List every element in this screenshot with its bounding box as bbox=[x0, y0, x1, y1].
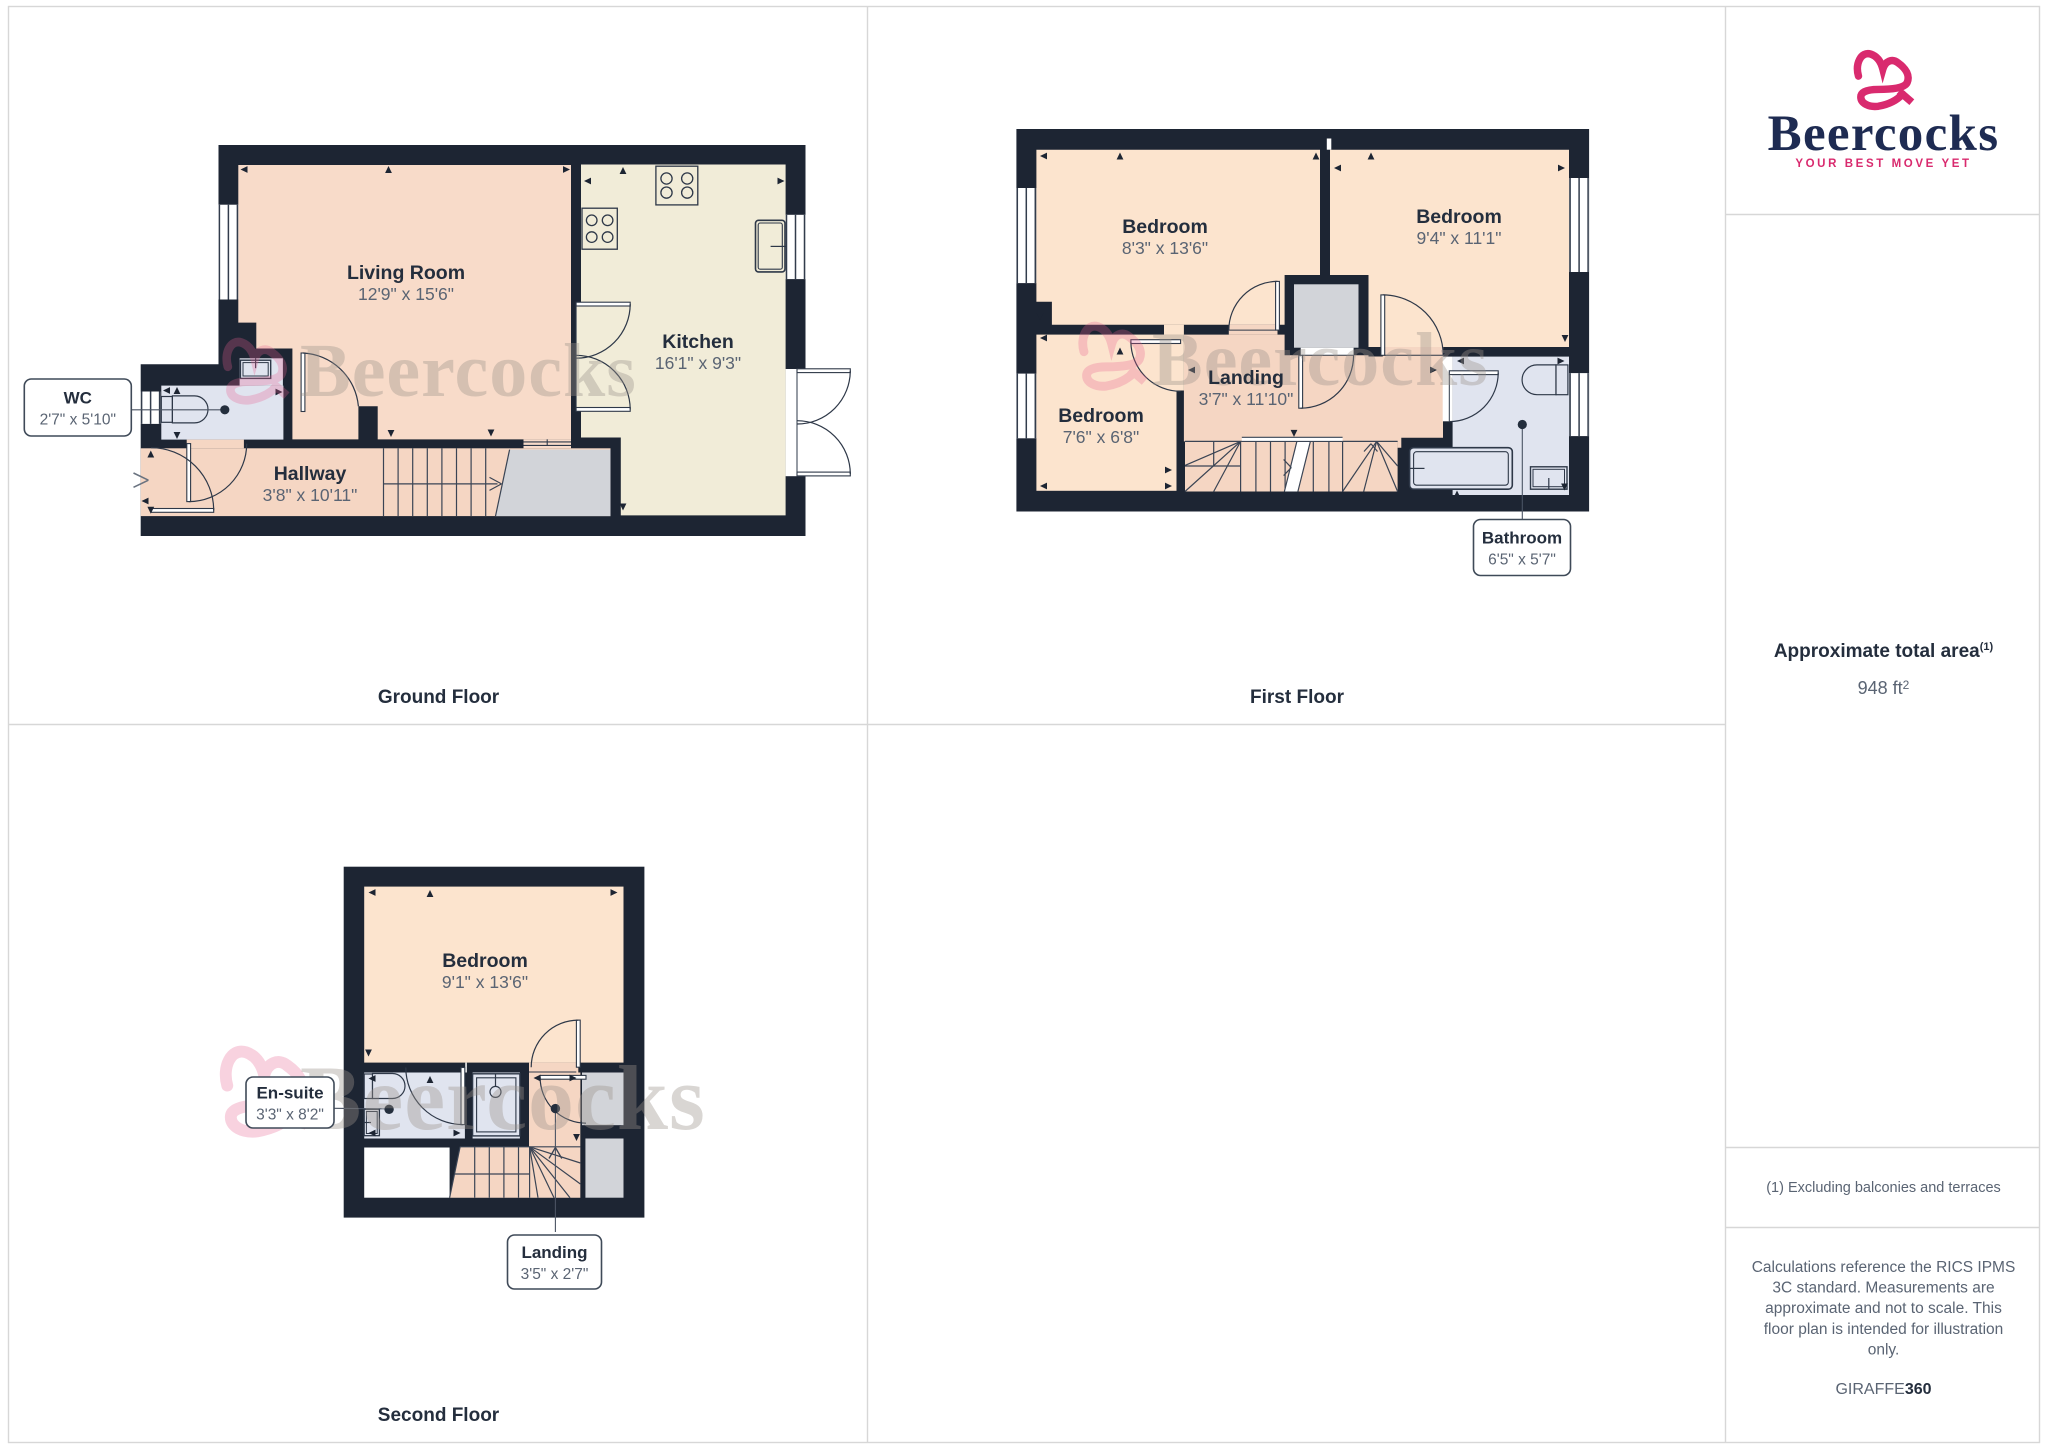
svg-text:Bedroom: Bedroom bbox=[1058, 405, 1144, 427]
svg-text:3'7" x 11'10": 3'7" x 11'10" bbox=[1199, 389, 1294, 409]
svg-text:12'9" x 15'6": 12'9" x 15'6" bbox=[358, 284, 454, 304]
svg-text:3'5" x 2'7": 3'5" x 2'7" bbox=[521, 1266, 589, 1283]
svg-text:Second Floor: Second Floor bbox=[378, 1405, 500, 1426]
svg-text:(1) Excluding balconies and te: (1) Excluding balconies and terraces bbox=[1766, 1180, 2001, 1196]
svg-text:6'5" x 5'7": 6'5" x 5'7" bbox=[1488, 552, 1556, 569]
svg-text:Approximate total area(1): Approximate total area(1) bbox=[1774, 641, 1994, 662]
svg-text:Bedroom: Bedroom bbox=[442, 950, 528, 972]
svg-text:Beercocks: Beercocks bbox=[300, 329, 637, 413]
svg-text:En-suite: En-suite bbox=[256, 1084, 323, 1103]
svg-text:Kitchen: Kitchen bbox=[662, 331, 734, 353]
svg-text:Landing: Landing bbox=[521, 1243, 587, 1262]
svg-text:Landing: Landing bbox=[1208, 367, 1284, 389]
svg-text:Living Room: Living Room bbox=[347, 262, 465, 284]
svg-text:Bedroom: Bedroom bbox=[1416, 206, 1502, 228]
svg-text:Beercocks: Beercocks bbox=[300, 1047, 706, 1149]
svg-text:3C standard. Measurements are: 3C standard. Measurements are bbox=[1772, 1280, 1994, 1297]
svg-text:3'8" x 10'11": 3'8" x 10'11" bbox=[263, 485, 358, 505]
svg-text:approximate and not to scale.: approximate and not to scale. This bbox=[1765, 1300, 2002, 1317]
svg-text:Bedroom: Bedroom bbox=[1122, 216, 1208, 238]
svg-text:8'3" x 13'6": 8'3" x 13'6" bbox=[1122, 238, 1208, 258]
svg-text:YOUR BEST MOVE YET: YOUR BEST MOVE YET bbox=[1795, 158, 1971, 170]
svg-text:2'7" x 5'10": 2'7" x 5'10" bbox=[40, 412, 116, 429]
svg-text:Beercocks: Beercocks bbox=[1768, 106, 2000, 162]
svg-text:only.: only. bbox=[1868, 1341, 1900, 1358]
svg-text:7'6" x 6'8": 7'6" x 6'8" bbox=[1063, 427, 1140, 447]
svg-text:floor plan is intended for ill: floor plan is intended for illustration bbox=[1764, 1321, 2004, 1338]
svg-text:16'1" x 9'3": 16'1" x 9'3" bbox=[655, 353, 741, 373]
svg-text:9'4" x 11'1": 9'4" x 11'1" bbox=[1417, 228, 1502, 248]
svg-text:WC: WC bbox=[64, 389, 92, 408]
svg-text:3'3" x 8'2": 3'3" x 8'2" bbox=[256, 1107, 324, 1124]
svg-text:First Floor: First Floor bbox=[1250, 687, 1345, 708]
svg-text:Bathroom: Bathroom bbox=[1482, 529, 1562, 548]
svg-text:Ground Floor: Ground Floor bbox=[378, 687, 500, 708]
svg-text:9'1" x 13'6": 9'1" x 13'6" bbox=[442, 972, 528, 992]
svg-text:Calculations reference the RIC: Calculations reference the RICS IPMS bbox=[1752, 1259, 2016, 1276]
svg-text:GIRAFFE360: GIRAFFE360 bbox=[1835, 1381, 1931, 1398]
svg-text:Hallway: Hallway bbox=[274, 463, 347, 485]
svg-text:948 ft2: 948 ft2 bbox=[1858, 678, 1910, 698]
